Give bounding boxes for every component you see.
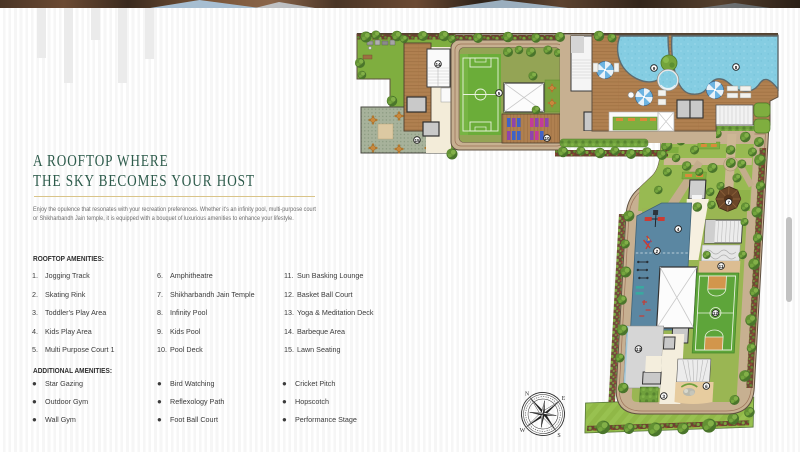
svg-text:9: 9 <box>653 66 656 71</box>
svg-text:8: 8 <box>735 65 738 70</box>
svg-text:11: 11 <box>718 264 724 269</box>
svg-text:10: 10 <box>544 136 550 141</box>
svg-text:13: 13 <box>636 347 642 352</box>
svg-text:14: 14 <box>435 62 441 67</box>
svg-text:15: 15 <box>414 138 420 143</box>
svg-text:12: 12 <box>713 311 719 316</box>
svg-text:5: 5 <box>498 91 501 96</box>
